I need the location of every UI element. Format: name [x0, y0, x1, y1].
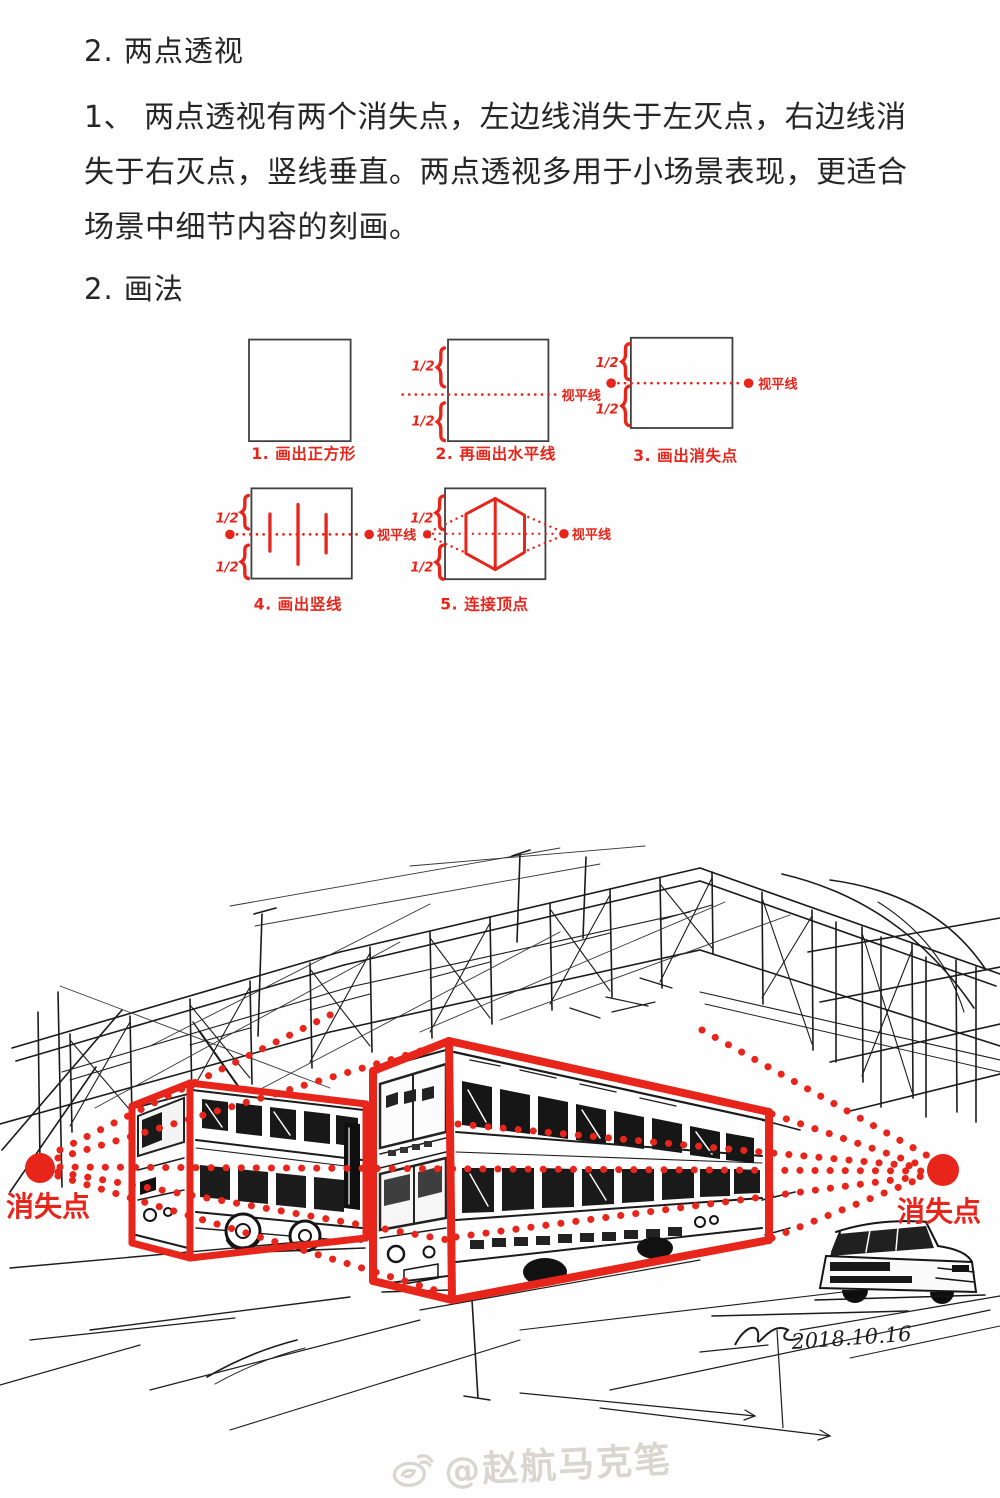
car-sketch: [815, 1221, 985, 1304]
half-label: 1/2: [216, 511, 239, 526]
vanishing-point-label-right: 消失点: [897, 1195, 981, 1228]
step-4-figure: 1/2 1/2 视平线 4. 画出竖线: [216, 488, 417, 613]
vanishing-point-dot: [559, 529, 569, 539]
brace-top: [437, 348, 444, 387]
half-label: 1/2: [410, 560, 433, 575]
half-label: 1/2: [596, 356, 619, 371]
vanishing-point-dot: [744, 378, 754, 388]
brace-top: [436, 496, 443, 529]
horizon-label: 视平线: [562, 387, 601, 404]
brace-bottom: [622, 386, 629, 425]
page-title: 2. 两点透视: [84, 28, 244, 70]
brace-top: [241, 496, 248, 529]
bus-perspective-sketch: 2018.10.16: [0, 820, 1000, 1498]
vanishing-point-dot: [364, 530, 374, 540]
half-label: 1/2: [410, 511, 433, 526]
half-label: 1/2: [596, 403, 619, 418]
half-label: 1/2: [412, 360, 435, 375]
brace-bottom: [436, 545, 443, 579]
perspective-dotted-line: [526, 536, 562, 551]
perspective-dotted-line: [429, 515, 464, 532]
artist-signature: 2018.10.16: [700, 1311, 912, 1428]
square: [448, 340, 548, 442]
half-label: 1/2: [216, 560, 239, 575]
step-caption: 4. 画出竖线: [254, 595, 342, 614]
step-caption: 5. 连接顶点: [440, 595, 528, 614]
step-caption: 3. 画出消失点: [633, 446, 737, 465]
vanishing-point-dot: [606, 378, 616, 388]
perspective-dotted-line: [429, 537, 464, 553]
vanishing-point-label-left: 消失点: [6, 1190, 90, 1223]
half-label: 1/2: [412, 415, 435, 430]
horizon-label: 视平线: [377, 527, 416, 544]
step-caption: 2. 再画出水平线: [435, 444, 556, 463]
vanishing-point-dot-right: [927, 1154, 959, 1186]
step-3-figure: 1/2 1/2 视平线 3. 画出消失点: [596, 338, 798, 465]
brace-bottom: [437, 403, 444, 441]
step-2-figure: 1/2 1/2 视平线 2. 再画出水平线: [403, 340, 601, 464]
horizon-label: 视平线: [758, 376, 797, 393]
brace-bottom: [241, 545, 248, 578]
perspective-dotted-line: [526, 516, 562, 532]
step-1-figure: 1. 画出正方形: [249, 340, 356, 464]
brace-top: [622, 344, 629, 380]
square: [249, 340, 351, 442]
method-heading: 2. 画法: [84, 266, 184, 308]
intro-paragraph: 1、 两点透视有两个消失点，左边线消失于左灭点，右边线消 失于右灭点，竖线垂直。…: [84, 90, 964, 255]
weibo-watermark-icon: [387, 1446, 435, 1494]
vanishing-point-dot-left: [25, 1153, 55, 1183]
vanishing-point-dot: [423, 530, 431, 538]
signature-date: 2018.10.16: [790, 1322, 913, 1354]
scanned-page: 2. 两点透视 1、 两点透视有两个消失点，左边线消失于左灭点，右边线消 失于右…: [0, 0, 1000, 1498]
horizon-label: 视平线: [572, 526, 611, 543]
step-caption: 1. 画出正方形: [251, 444, 355, 463]
step-5-figure: 1/2 1/2 视平线 5. 连接顶点: [410, 488, 611, 613]
vanishing-point-dot: [225, 530, 235, 540]
step-diagrams-figure: 1. 画出正方形 1/2 1/2 视平线 2. 再画出水平线 1/2 1/2 视…: [0, 330, 1000, 820]
